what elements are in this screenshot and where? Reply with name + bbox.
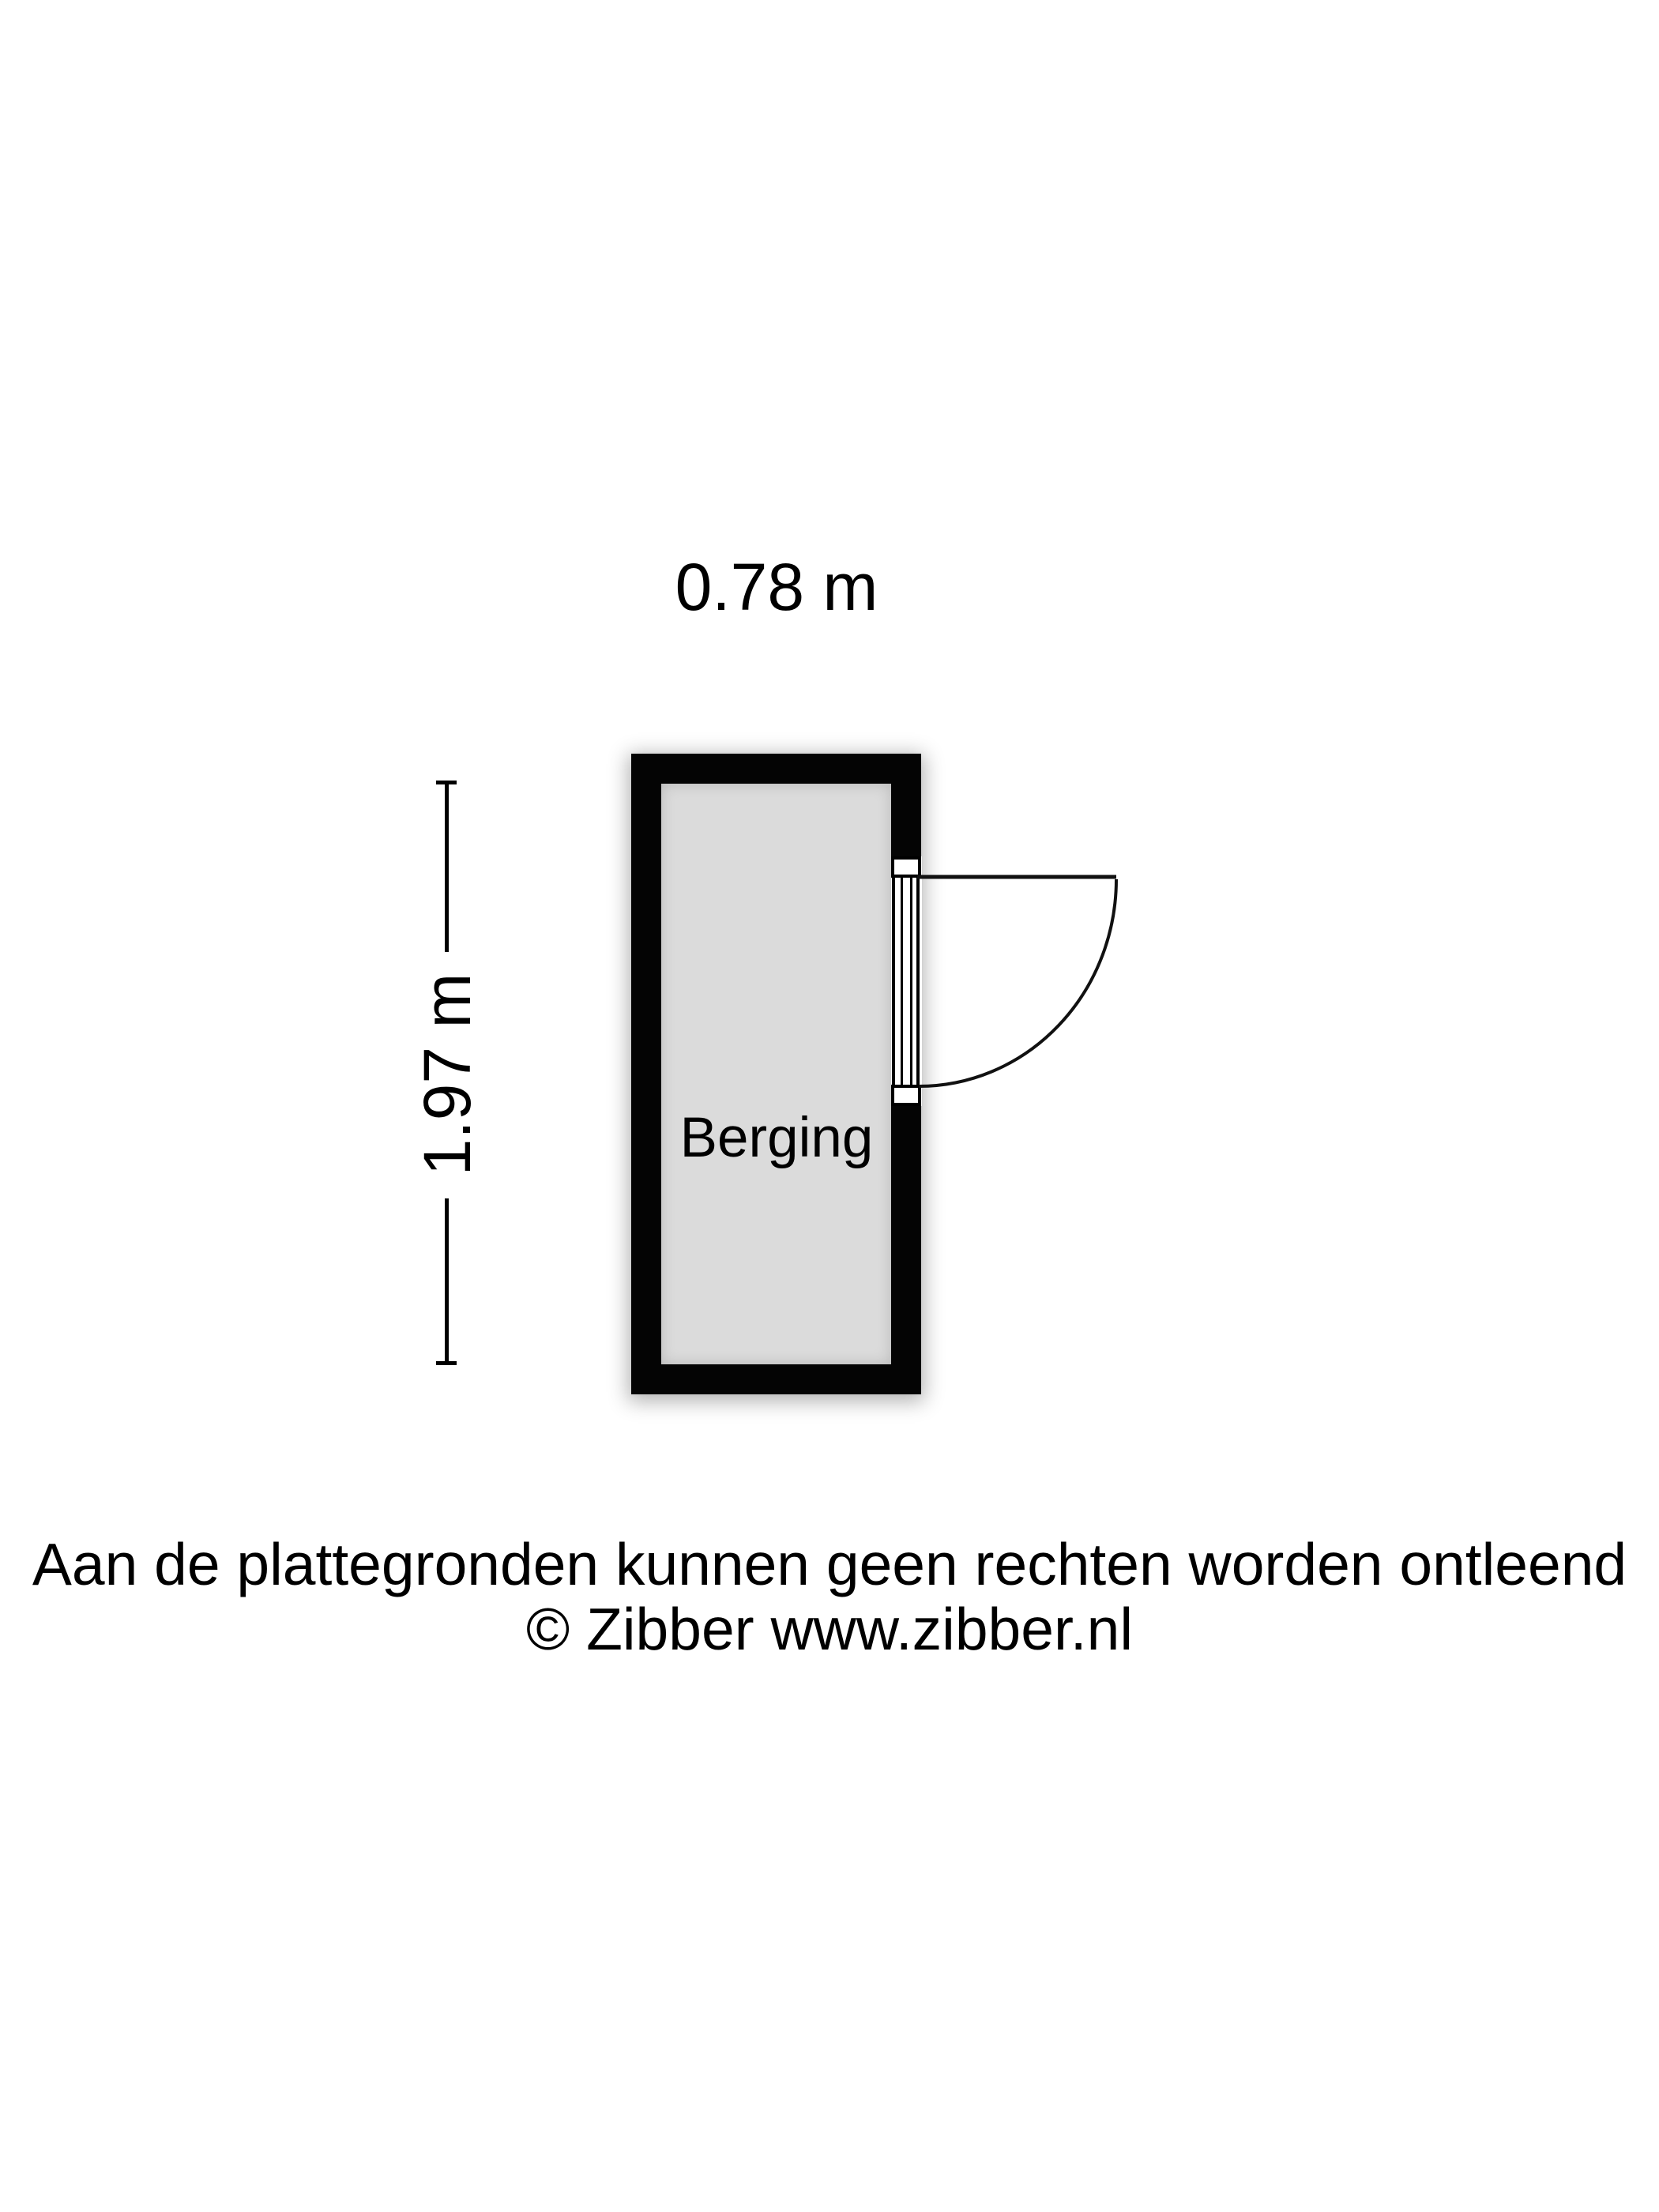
dimension-tick-bottom (436, 1361, 457, 1365)
door-frame-line (892, 876, 895, 1086)
width-dimension-label: 0.78 m (675, 554, 878, 620)
footer-disclaimer-line1: Aan de plattegronden kunnen geen rechten… (0, 1532, 1659, 1597)
footer-copyright-line: © Zibber www.zibber.nl (0, 1597, 1659, 1661)
door-frame-line (910, 876, 912, 1086)
door-frame-line (901, 876, 903, 1086)
dimension-line-lower-segment (445, 1198, 449, 1364)
room-floor (661, 784, 891, 1364)
footer-disclaimer: Aan de plattegronden kunnen geen rechten… (0, 1532, 1659, 1661)
room-name-label: Berging (680, 1110, 874, 1166)
door-jamb-bottom (891, 1085, 921, 1106)
door-jamb-top (891, 856, 921, 878)
door-swing-arc (919, 879, 1116, 1086)
door-frame-line (916, 876, 920, 1086)
floorplan-canvas: 0.78 m 1.97 m Berging Aan de plattegrond… (0, 0, 1659, 2212)
height-dimension-label: 1.97 m (414, 973, 480, 1176)
dimension-line-upper-segment (445, 781, 449, 952)
